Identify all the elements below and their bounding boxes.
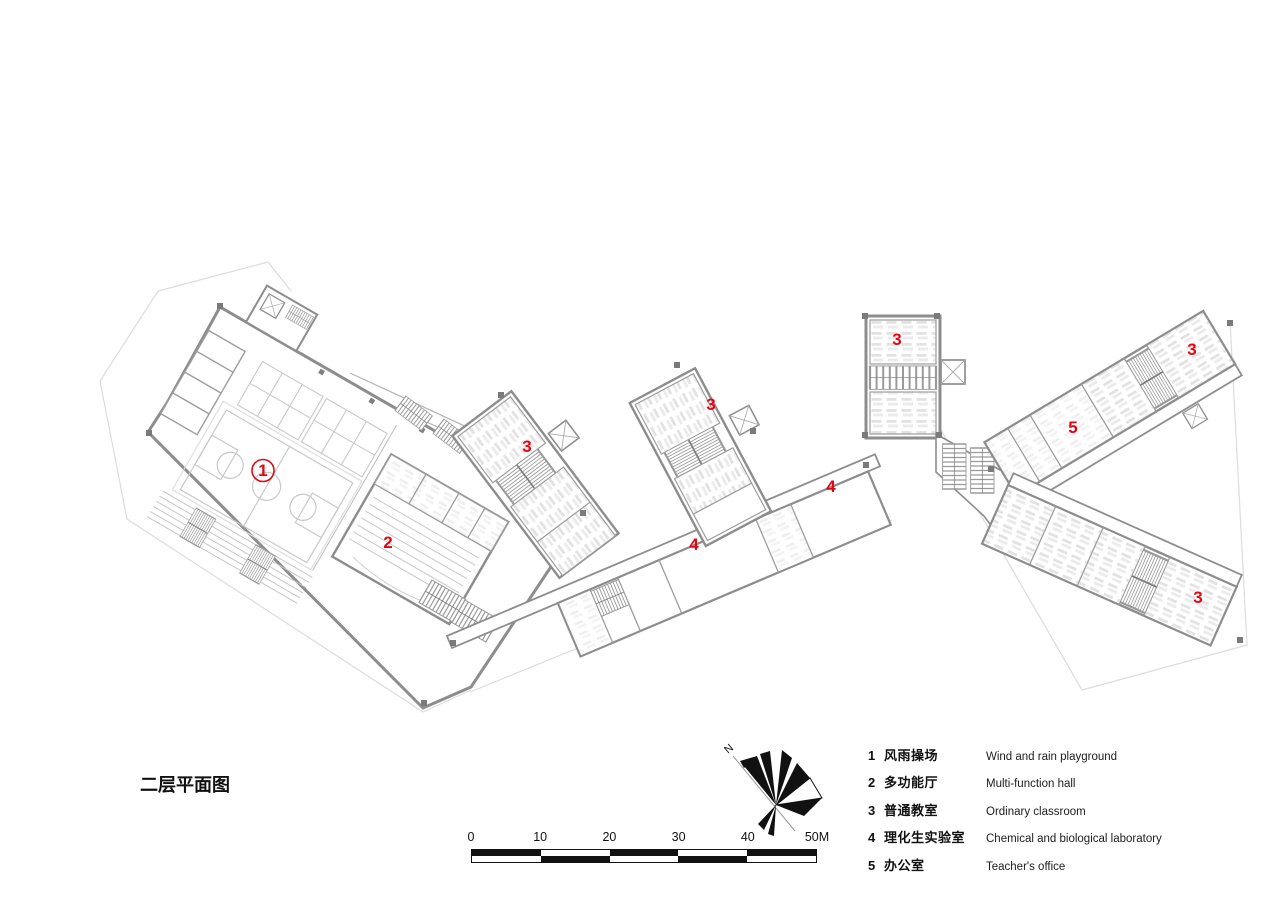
legend-row: 4 理化生实验室 Chemical and biological laborat… — [868, 827, 1162, 854]
scale-tick-label: 40 — [741, 830, 755, 844]
scale-tick-label: 0 — [468, 830, 475, 844]
legend-number: 2 — [868, 775, 884, 790]
room-label-room-4b: 4 — [826, 477, 836, 496]
legend-label-en: Ordinary classroom — [986, 806, 1162, 818]
room-label-room-3b: 3 — [706, 395, 715, 414]
north-label: N — [722, 742, 736, 756]
legend-number: 5 — [868, 858, 884, 873]
legend-number: 4 — [868, 830, 884, 845]
drawing-title: 二层平面图 — [140, 771, 230, 797]
scale-bar-labels: 01020304050M — [471, 830, 817, 846]
scale-bar: 01020304050M — [471, 830, 817, 863]
legend-label-en: Teacher's office — [986, 861, 1162, 873]
legend-row: 1 风雨操场 Wind and rain playground — [868, 745, 1162, 772]
scale-tick-label: 50M — [805, 830, 829, 844]
legend-label-zh: 理化生实验室 — [884, 827, 986, 846]
legend-row: 2 多功能厅 Multi-function hall — [868, 772, 1162, 799]
room-label-room-3c: 3 — [892, 330, 901, 349]
scale-tick-label: 30 — [672, 830, 686, 844]
legend-label-zh: 普通教室 — [884, 800, 986, 819]
legend-label-en: Chemical and biological laboratory — [986, 833, 1162, 845]
scale-tick-label: 10 — [533, 830, 547, 844]
room-label-room-1: 1 — [258, 461, 267, 480]
legend-label-zh: 多功能厅 — [884, 772, 986, 791]
room-label-room-3a: 3 — [522, 437, 531, 456]
legend-label-zh: 风雨操场 — [884, 745, 986, 764]
room-label-room-3e: 3 — [1193, 588, 1202, 607]
room-label-room-3d: 3 — [1187, 340, 1196, 359]
room-label-room-5: 5 — [1068, 418, 1077, 437]
room-label-room-4a: 4 — [689, 535, 699, 554]
floor-plan-page: 1233333445 N 二层平面图 01020304050M 1 风雨操场 W… — [0, 0, 1280, 904]
legend-row: 3 普通教室 Ordinary classroom — [868, 800, 1162, 827]
scale-bar-strip — [471, 849, 817, 863]
legend: 1 风雨操场 Wind and rain playground 2 多功能厅 M… — [868, 745, 1162, 882]
legend-number: 1 — [868, 748, 884, 763]
scale-tick-label: 20 — [602, 830, 616, 844]
room-label-room-2: 2 — [383, 533, 392, 552]
legend-label-en: Multi-function hall — [986, 778, 1162, 790]
legend-label-en: Wind and rain playground — [986, 751, 1162, 763]
middle-classroom-block — [866, 316, 965, 438]
classroom-wing-lower — [982, 473, 1242, 645]
legend-number: 3 — [868, 803, 884, 818]
legend-row: 5 办公室 Teacher's office — [868, 855, 1162, 882]
legend-label-zh: 办公室 — [884, 855, 986, 874]
